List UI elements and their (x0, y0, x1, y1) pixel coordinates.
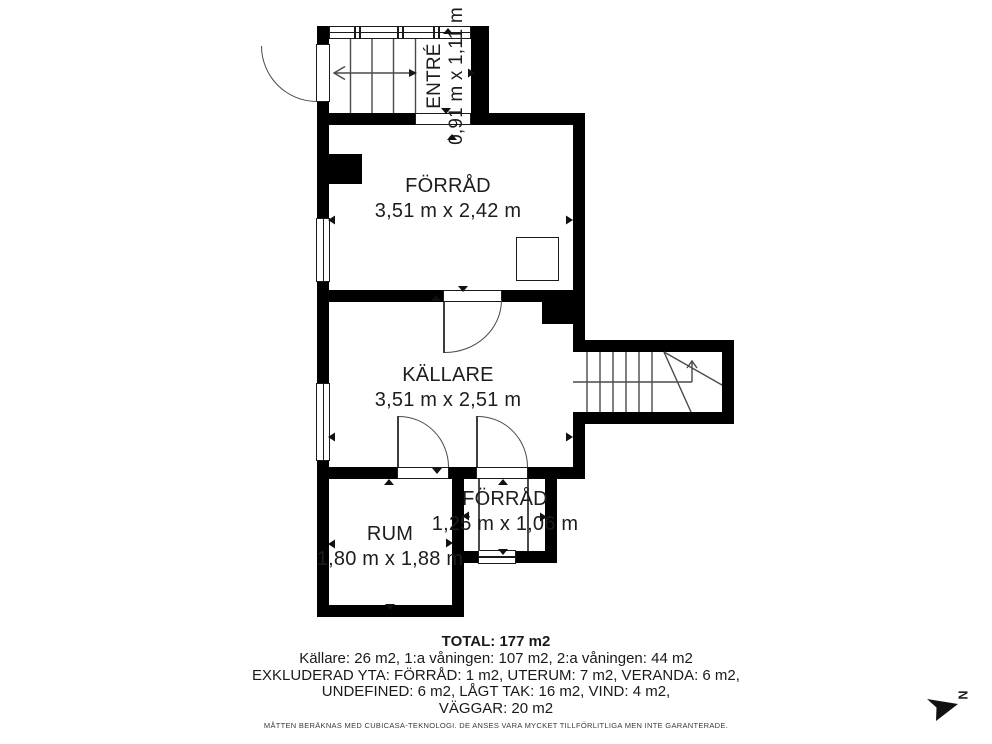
dimension-arrow-icon (566, 433, 573, 442)
dimension-arrow-icon (385, 604, 395, 610)
total-area: TOTAL: 177 m2 (0, 634, 992, 651)
summary-line: VÄGGAR: 20 m2 (0, 701, 992, 718)
dimension-arrow-icon (447, 134, 457, 140)
dimension-arrow-icon (328, 433, 335, 442)
dimension-arrow-icon (458, 286, 468, 292)
dimension-arrow-icon (328, 216, 335, 225)
entry-stairs (334, 39, 416, 113)
dimension-arrow-icon (498, 479, 508, 485)
dimension-arrow-icon (468, 69, 475, 78)
summary-line: Källare: 26 m2, 1:a våningen: 107 m2, 2:… (0, 651, 992, 668)
dimension-arrow-icon (566, 216, 573, 225)
dimension-arrow-icon (441, 108, 451, 114)
dimension-arrow-icon (462, 512, 469, 521)
basement-stairs (573, 352, 722, 412)
floorplan-canvas: ENTRÉ 0,91 m x 1,11 m FÖRRÅD 3,51 m x 2,… (0, 0, 992, 744)
dimension-arrow-icon (328, 540, 335, 549)
disclaimer-text: MÅTTEN BERÄKNAS MED CUBICASA-TEKNOLOGI. … (0, 721, 992, 730)
dimension-arrow-icon (540, 513, 547, 522)
dimension-arrow-icon (498, 549, 508, 555)
summary-line: UNDEFINED: 6 m2, LÅGT TAK: 16 m2, VIND: … (0, 684, 992, 701)
dimension-arrow-icon (384, 479, 394, 485)
dimension-arrow-icon (443, 28, 453, 34)
dimension-arrow-icon (446, 539, 453, 548)
dimension-arrow-icon (432, 468, 442, 474)
dimension-arrow-icon (431, 295, 441, 301)
summary-line: EXKLUDERAD YTA: FÖRRÅD: 1 m2, UTERUM: 7 … (0, 668, 992, 685)
area-summary: TOTAL: 177 m2 Källare: 26 m2, 1:a våning… (0, 634, 992, 718)
dimension-arrows (328, 28, 573, 610)
